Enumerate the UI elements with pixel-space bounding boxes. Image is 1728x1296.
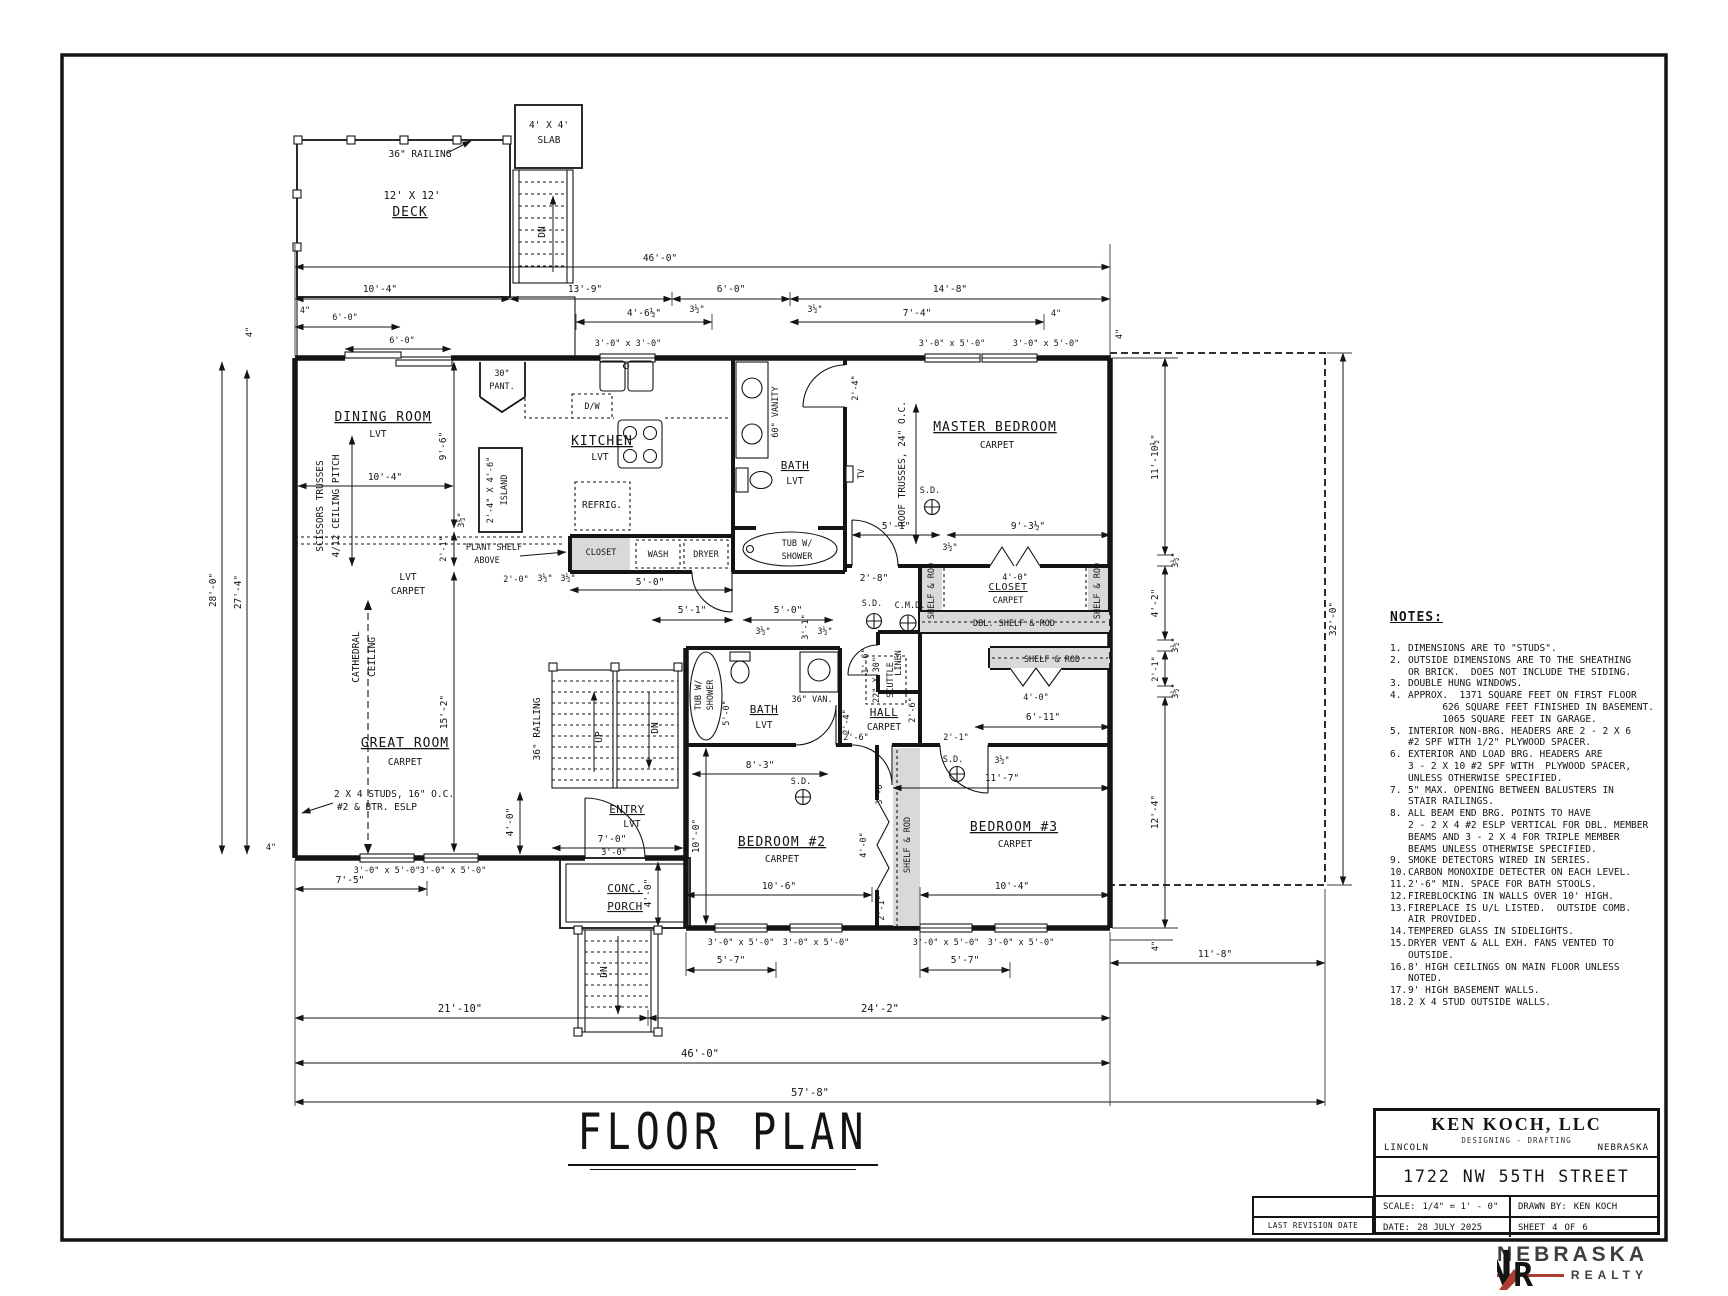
- plant-shelf-label: ABOVE: [474, 556, 500, 566]
- last-revision-value: [1254, 1198, 1372, 1218]
- window-size-label: 3'-0" x 3'-0": [595, 339, 662, 349]
- window-size-label: 3'-0" x 5'-0": [783, 938, 850, 948]
- door-master-closet: [990, 547, 1040, 566]
- room-label-porch: PORCH: [607, 900, 643, 913]
- floor-label: CARPET: [993, 596, 1024, 606]
- deck-stairs-dn-label: DN: [537, 226, 548, 238]
- drawing-title-text: FLOOR PLAN: [568, 1104, 878, 1162]
- company-state: NEBRASKA: [1598, 1143, 1649, 1153]
- ceiling-note: CATHEDRAL: [351, 631, 362, 683]
- note-item: 13.FIREPLACE IS U/L LISTED. OUTSIDE COMB…: [1390, 903, 1658, 927]
- room-label-bed3: BEDROOM #3: [970, 820, 1058, 835]
- dim-label: 4'-6½": [627, 308, 661, 319]
- dim-label: 3'-0": [601, 848, 627, 858]
- dim-label: 4": [1115, 329, 1125, 339]
- toilet-2: [730, 652, 750, 683]
- note-item: 3.DOUBLE HUNG WINDOWS.: [1390, 678, 1658, 690]
- washer-label: WASH: [648, 550, 668, 560]
- dim-label: 4": [300, 306, 310, 316]
- dim-label: 3½": [456, 512, 467, 527]
- dim-label: 1'-6": [861, 648, 871, 674]
- title-block: KEN KOCH, LLC DESIGNING - DRAFTING LINCO…: [1373, 1108, 1660, 1235]
- railing-label: 36" RAILING: [532, 697, 543, 760]
- dim-label: 3½": [1170, 552, 1181, 567]
- last-revision-box: LAST REVISION DATE: [1252, 1196, 1374, 1235]
- dim-label: 5'-1": [678, 605, 707, 616]
- dim-label: 2'-1": [877, 895, 887, 921]
- dim-label: 5'-7": [717, 955, 746, 966]
- dim-label: 10'-4": [363, 284, 397, 295]
- porch-stairs-dn-label: DN: [599, 966, 610, 978]
- room-label-bath: BATH: [750, 703, 779, 716]
- stairs-up-label: UP: [594, 731, 605, 743]
- window-bed3-1: [920, 924, 972, 932]
- window-master-1: [925, 354, 980, 362]
- refrigerator-label: REFRIG.: [582, 500, 622, 511]
- dim-label: 3½": [1170, 683, 1181, 698]
- dim-label: 3½": [560, 573, 575, 584]
- scale-drawn-row: SCALE: 1/4" = 1' - 0" DRAWN BY: KEN KOCH: [1376, 1197, 1657, 1218]
- dim-label: 46'-0": [643, 253, 677, 264]
- sheet-total: 6: [1582, 1223, 1587, 1233]
- dim-label: 15'-2": [439, 695, 450, 729]
- dim-label: 10'-0": [691, 819, 702, 853]
- pantry-label: 30": [494, 369, 509, 379]
- tv-label: TV: [857, 469, 867, 479]
- dim-label: 5'-1": [882, 521, 911, 532]
- dryer-label: DRYER: [693, 550, 719, 560]
- truss-note: SCISSORS TRUSSES: [315, 460, 326, 552]
- detector-label: C.M.D.: [895, 601, 926, 611]
- date-value: 28 JULY 2025: [1417, 1223, 1482, 1233]
- window-bed2-1: [715, 924, 767, 932]
- dim-label: 9'-3½": [1011, 521, 1045, 532]
- drawn-by-cell: DRAWN BY: KEN KOCH: [1511, 1197, 1624, 1216]
- stud-note: #2 & BTR. ESLP: [337, 802, 417, 813]
- island-label: ISLAND: [500, 475, 510, 506]
- note-item: 12.FIREBLOCKING IN WALLS OVER 10' HIGH.: [1390, 891, 1658, 903]
- dim-label: 3½": [755, 626, 770, 637]
- dim-label: 13'-9": [568, 284, 602, 295]
- truss-note: ROOF TRUSSES, 24" O.C.: [897, 401, 908, 527]
- floor-label: CARPET: [388, 757, 423, 768]
- window-size-label: 3'-0" x 5'-0": [420, 866, 487, 876]
- door-bed2: [852, 745, 892, 785]
- labels: 46'-0" 10'-4" 13'-9" 6'-0" 14'-8" 3½" 3½…: [208, 253, 1339, 1099]
- dim-label: 4'-0": [643, 879, 654, 908]
- dim-label: 4": [245, 327, 255, 337]
- dim-label: 2'-1": [943, 733, 969, 743]
- tub-label: TUB W/: [694, 680, 704, 711]
- nr-monogram-r: R: [1513, 1255, 1533, 1291]
- drawn-by-value: KEN KOCH: [1574, 1202, 1617, 1212]
- note-item: 5.INTERIOR NON-BRG. HEADERS ARE 2 - 2 X …: [1390, 726, 1658, 750]
- door-bed3: [940, 745, 988, 793]
- room-label-master: MASTER BEDROOM: [933, 420, 1057, 435]
- nebraska-realty-logo: N R NEBRASKA REALTY: [1497, 1243, 1648, 1282]
- tub-label: SHOWER: [782, 552, 814, 562]
- note-item: 11.2'-6" MIN. SPACE FOR BATH STOOLS.: [1390, 879, 1658, 891]
- date-cell: DATE: 28 JULY 2025: [1376, 1218, 1511, 1237]
- dim-label: 10'-4": [368, 472, 402, 483]
- dim-label: 32'-0": [1328, 602, 1339, 636]
- smoke-detector: [796, 790, 811, 805]
- scale-label: SCALE:: [1383, 1202, 1416, 1212]
- floor-transition-label: CARPET: [391, 586, 426, 597]
- vanity-label: 60" VANITY: [771, 386, 781, 437]
- door-bath2: [796, 705, 836, 745]
- dim-label: 11'-8": [1198, 949, 1232, 960]
- dim-label: 4": [1151, 941, 1161, 951]
- dim-label: 9'-6": [438, 432, 449, 461]
- plant-shelf-label: PLANT SHELF: [466, 543, 522, 553]
- scuttle-label: 22" X 30": [872, 657, 882, 703]
- pantry-label: PANT.: [489, 382, 515, 392]
- dim-label: 28'-0": [208, 573, 219, 607]
- room-label-porch: CONC.: [607, 882, 643, 895]
- dim-label: 21'-10": [438, 1003, 482, 1015]
- dim-label: 10'-4": [995, 881, 1029, 892]
- floor-label: LVT: [369, 429, 386, 440]
- floor-label: LVT: [591, 452, 608, 463]
- title-block-company-row: KEN KOCH, LLC DESIGNING - DRAFTING LINCO…: [1376, 1111, 1657, 1158]
- dim-label: 6'-0": [717, 284, 746, 295]
- tv-marker: [846, 466, 853, 482]
- island-label: 2'-4" X 4'-6": [486, 457, 496, 524]
- dim-label: 4": [1051, 309, 1061, 319]
- dim-label: 46'-0": [681, 1048, 719, 1060]
- dim-label: 2'-6": [843, 733, 869, 743]
- floor-label: LVT: [623, 819, 640, 830]
- dim-label: 6'-11": [1026, 712, 1060, 723]
- company-name: KEN KOCH, LLC: [1376, 1114, 1657, 1135]
- dim-label: 2'-4": [842, 709, 852, 735]
- dim-label: 3½": [1170, 637, 1181, 652]
- detector-label: S.D.: [943, 755, 963, 765]
- shelf-rod-label: SHELF & ROD: [927, 563, 937, 619]
- kitchen-sink: [600, 361, 653, 391]
- door-bed2-closet-bifold: [877, 800, 889, 890]
- scuttle-label: SCUTTLE: [886, 662, 896, 698]
- note-item: 16.8' HIGH CEILINGS ON MAIN FLOOR UNLESS…: [1390, 962, 1658, 986]
- door-master-bath: [803, 365, 845, 407]
- room-label-great: GREAT ROOM: [361, 736, 449, 751]
- dim-label: 7'-4": [903, 308, 932, 319]
- floor-label: CARPET: [867, 722, 902, 733]
- truss-note: 4/12 CEILING PITCH: [331, 454, 342, 557]
- room-label-entry: ENTRY: [609, 803, 645, 816]
- dim-label: 2'-8": [860, 573, 889, 584]
- garage-outline: [1110, 353, 1325, 885]
- window-master-2: [982, 354, 1037, 362]
- note-item: 6.EXTERIOR AND LOAD BRG. HEADERS ARE 3 -…: [1390, 749, 1658, 784]
- dim-label: 2'-0": [503, 575, 529, 585]
- ceiling-note: CEILING: [367, 637, 378, 677]
- dim-label: 11'-7": [985, 773, 1019, 784]
- dim-label: 4": [266, 843, 276, 853]
- stud-note: 2 X 4 STUDS, 16" O.C.: [334, 789, 454, 800]
- room-label-dining: DINING ROOM: [334, 410, 431, 425]
- room-label-closet: CLOSET: [988, 582, 1027, 593]
- shelf-rod-label: SHELF & ROD: [903, 817, 913, 873]
- dim-label: 3½": [817, 626, 832, 637]
- dim-label: 3½": [537, 573, 552, 584]
- window-size-label: 3'-0" x 5'-0": [708, 938, 775, 948]
- dim-label: 3½": [807, 304, 822, 315]
- notes-heading: NOTES:: [1390, 610, 1658, 625]
- slab-size-label: 4' X 4': [529, 120, 569, 131]
- dim-label: 3½": [994, 755, 1009, 766]
- window-great-1: [360, 854, 414, 862]
- note-item: 9.SMOKE DETECTORS WIRED IN SERIES.: [1390, 855, 1658, 867]
- title-underline: [568, 1164, 878, 1166]
- stairs-dn-label: DN: [650, 722, 661, 734]
- dim-label: 24'-2": [861, 1003, 899, 1015]
- note-item: 1.DIMENSIONS ARE TO "STUDS".: [1390, 643, 1658, 655]
- floor-label: LVT: [755, 720, 772, 731]
- dim-label: 6'-0": [332, 313, 358, 323]
- window-great-2: [424, 854, 478, 862]
- dim-label: 11'-10½": [1150, 434, 1161, 480]
- note-item: 18.2 X 4 STUD OUTSIDE WALLS.: [1390, 997, 1658, 1009]
- vanity-36: [800, 652, 838, 692]
- co-detector: [900, 615, 916, 631]
- dim-label: 2'-1": [1151, 656, 1161, 682]
- floor-label: CARPET: [765, 854, 800, 865]
- nr-monogram: N R: [1497, 1243, 1553, 1291]
- dim-label: 4'-0": [505, 808, 516, 837]
- porch-stairs: [574, 926, 662, 1036]
- room-label-bed2: BEDROOM #2: [738, 835, 826, 850]
- note-item: 10.CARBON MONOXIDE DETECTER ON EACH LEVE…: [1390, 867, 1658, 879]
- drawing-title: FLOOR PLAN: [568, 1104, 878, 1170]
- dim-label: 2'-6": [908, 697, 918, 723]
- detector-label: S.D.: [862, 599, 882, 609]
- main-stairs: [549, 663, 682, 788]
- floor-label: CARPET: [998, 839, 1033, 850]
- dim-label: 5'-0": [774, 605, 803, 616]
- room-label-hall: HALL: [870, 706, 899, 719]
- dim-label: 3½": [942, 542, 957, 553]
- dim-label: 7'-5": [336, 875, 365, 886]
- dim-label: 10'-6": [762, 881, 796, 892]
- dim-label: 4'-0": [1002, 573, 1028, 583]
- note-item: 7.5" MAX. OPENING BETWEEN BALUSTERS IN S…: [1390, 785, 1658, 809]
- scale-value: 1/4" = 1' - 0": [1423, 1202, 1499, 1212]
- dim-label: 5'-0": [636, 577, 665, 588]
- dim-label: 7'-0": [598, 834, 627, 845]
- shelf-rod-label: SHELF & ROD: [1093, 563, 1103, 619]
- dim-label: 3'-0": [875, 779, 885, 805]
- window-size-label: 3'-0" x 5'-0": [988, 938, 1055, 948]
- slab-label: SLAB: [538, 135, 561, 146]
- door-hall-closet: [1010, 668, 1062, 686]
- note-item: 14.TEMPERED GLASS IN SIDELIGHTS.: [1390, 926, 1658, 938]
- dim-label: 12'-4": [1150, 795, 1161, 829]
- dim-label: 8'-3": [746, 760, 775, 771]
- window-size-label: 3'-0" x 5'-0": [1013, 339, 1080, 349]
- room-label-kitchen: KITCHEN: [571, 434, 633, 449]
- note-item: 15.DRYER VENT & ALL EXH. FANS VENTED TO …: [1390, 938, 1658, 962]
- tub-label: SHOWER: [706, 679, 716, 711]
- dim-label: 6'-0": [389, 336, 415, 346]
- deck-label: DECK: [392, 205, 427, 220]
- smoke-detector: [925, 500, 940, 515]
- deck-railing-label: 36" RAILING: [389, 149, 452, 160]
- window-size-label: 3'-0" x 5'-0": [913, 938, 980, 948]
- notes-panel: NOTES: 1.DIMENSIONS ARE TO "STUDS". 2.OU…: [1390, 610, 1658, 1009]
- dim-label: 14'-8": [933, 284, 967, 295]
- detector-label: S.D.: [920, 486, 940, 496]
- smoke-detector: [950, 767, 965, 782]
- floor-label: LVT: [786, 476, 803, 487]
- window-bed3-2: [995, 924, 1047, 932]
- dim-label: 4'-0": [859, 832, 869, 858]
- deck-size-label: 12' X 12': [384, 190, 441, 202]
- vanity-label: 36" VAN.: [792, 695, 833, 705]
- room-label-bath: BATH: [781, 459, 810, 472]
- shelf-rod-label: SHELF & ROD: [1024, 655, 1080, 665]
- nr-realty: REALTY: [1571, 1268, 1648, 1282]
- window-bed2-2: [790, 924, 842, 932]
- sliding-door-deck: [345, 352, 452, 366]
- dim-label: 5'-7": [951, 955, 980, 966]
- note-item: 4.APPROX. 1371 SQUARE FEET ON FIRST FLOO…: [1390, 690, 1658, 725]
- note-item: 2.OUTSIDE DIMENSIONS ARE TO THE SHEATHIN…: [1390, 655, 1658, 679]
- dim-label: 2'-4": [851, 375, 861, 401]
- date-sheet-row: DATE: 28 JULY 2025 SHEET 4 OF 6: [1376, 1218, 1657, 1237]
- project-address: 1722 NW 55TH STREET: [1376, 1158, 1657, 1197]
- dim-label: 3½": [689, 304, 704, 315]
- smoke-detector: [867, 614, 882, 629]
- detector-label: S.D.: [791, 777, 811, 787]
- toilet-1: [736, 468, 772, 492]
- note-item: 8.ALL BEAM END BRG. POINTS TO HAVE 2 - 2…: [1390, 808, 1658, 855]
- drawn-by-label: DRAWN BY:: [1518, 1202, 1567, 1212]
- floor-label: CARPET: [980, 440, 1015, 451]
- title-underline-2: [590, 1169, 857, 1170]
- dim-label: 4'-2": [1150, 589, 1161, 618]
- tub-label: TUB W/: [782, 539, 813, 549]
- sheet-cell: SHEET 4 OF 6: [1511, 1218, 1595, 1237]
- dimension-lines: [222, 244, 1352, 1106]
- closet-label: CLOSET: [586, 548, 617, 558]
- sheet-label: SHEET: [1518, 1223, 1545, 1233]
- dishwasher-label: D/W: [584, 402, 600, 412]
- dim-label: 3'-1": [801, 614, 811, 640]
- sheet-number: 4: [1552, 1223, 1557, 1233]
- last-revision-label: LAST REVISION DATE: [1254, 1218, 1372, 1233]
- dim-label: 57'-8": [791, 1087, 829, 1099]
- window-size-label: 3'-0" x 5'-0": [919, 339, 986, 349]
- floor-transition-label: LVT: [399, 572, 416, 583]
- date-label: DATE:: [1383, 1223, 1410, 1233]
- dim-label: 4'-0": [1023, 693, 1049, 703]
- company-city: LINCOLN: [1384, 1143, 1429, 1153]
- dim-label: 5'-0": [722, 700, 732, 726]
- sheet-of-label: OF: [1565, 1223, 1576, 1233]
- shelf-rod-label: DBL. SHELF & ROD: [973, 619, 1055, 629]
- floor-plan-sheet: { "title": "FLOOR PLAN", "colors": { "in…: [0, 0, 1728, 1296]
- dim-label: 2'-1": [439, 536, 449, 562]
- dim-label: 27'-4": [233, 575, 244, 609]
- scale-cell: SCALE: 1/4" = 1' - 0": [1376, 1197, 1511, 1216]
- note-item: 17.9' HIGH BASEMENT WALLS.: [1390, 985, 1658, 997]
